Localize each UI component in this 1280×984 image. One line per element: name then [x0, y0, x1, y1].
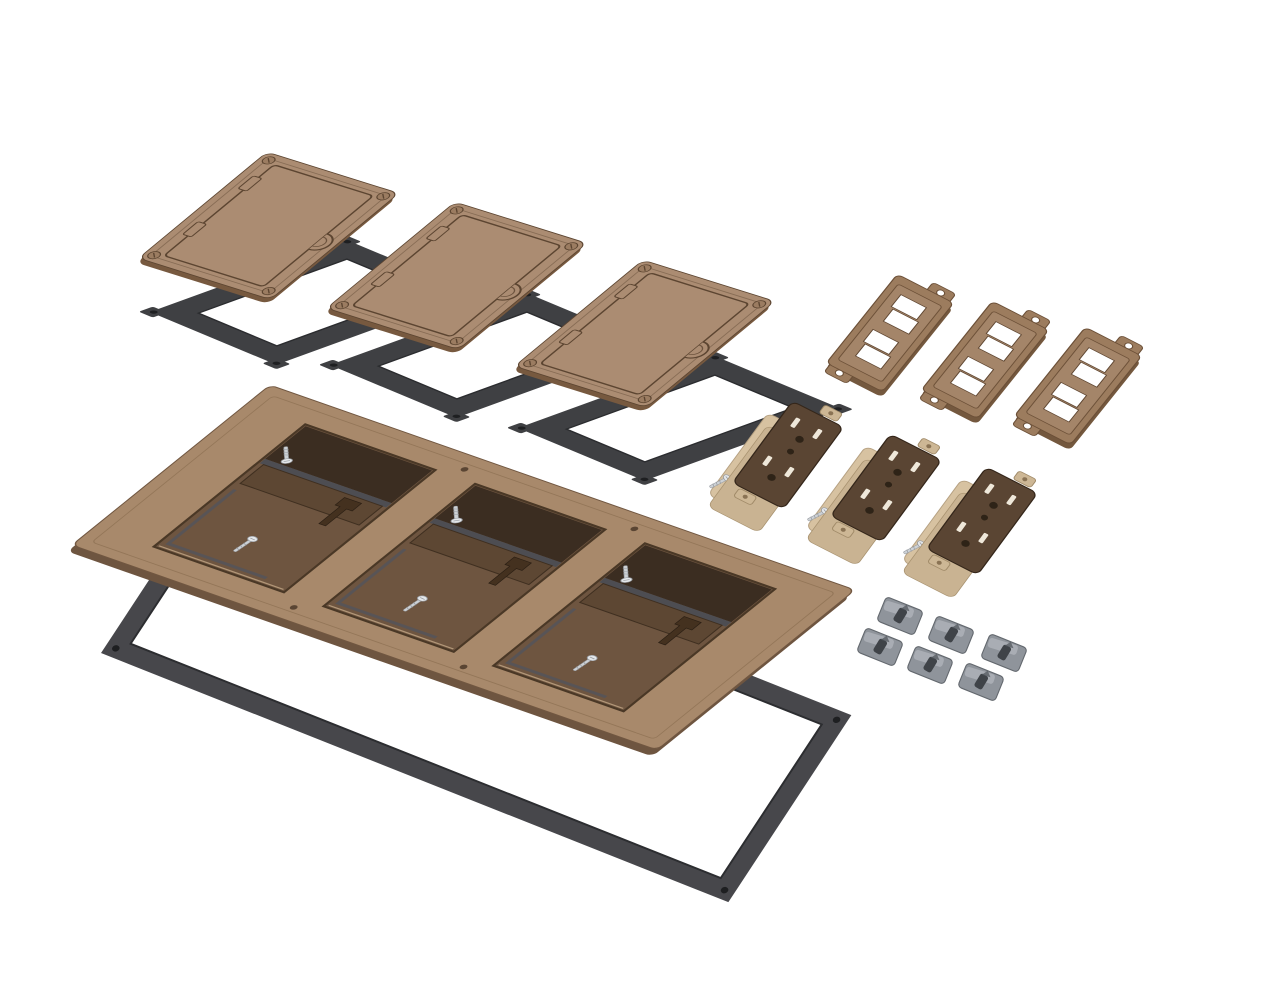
wedge-clamp-5: [907, 645, 954, 684]
wedge-clamp-6: [958, 662, 1005, 701]
wedge-clamp-2: [928, 615, 975, 654]
wedge-clamp-3: [981, 633, 1028, 672]
wedge-clamp-4: [857, 627, 904, 666]
floor-box-kit-render: [0, 0, 1280, 984]
wedge-clamp-1: [877, 596, 924, 635]
flip-lid-cover-3: [510, 260, 777, 412]
product-photo-canvas: [0, 0, 1280, 984]
